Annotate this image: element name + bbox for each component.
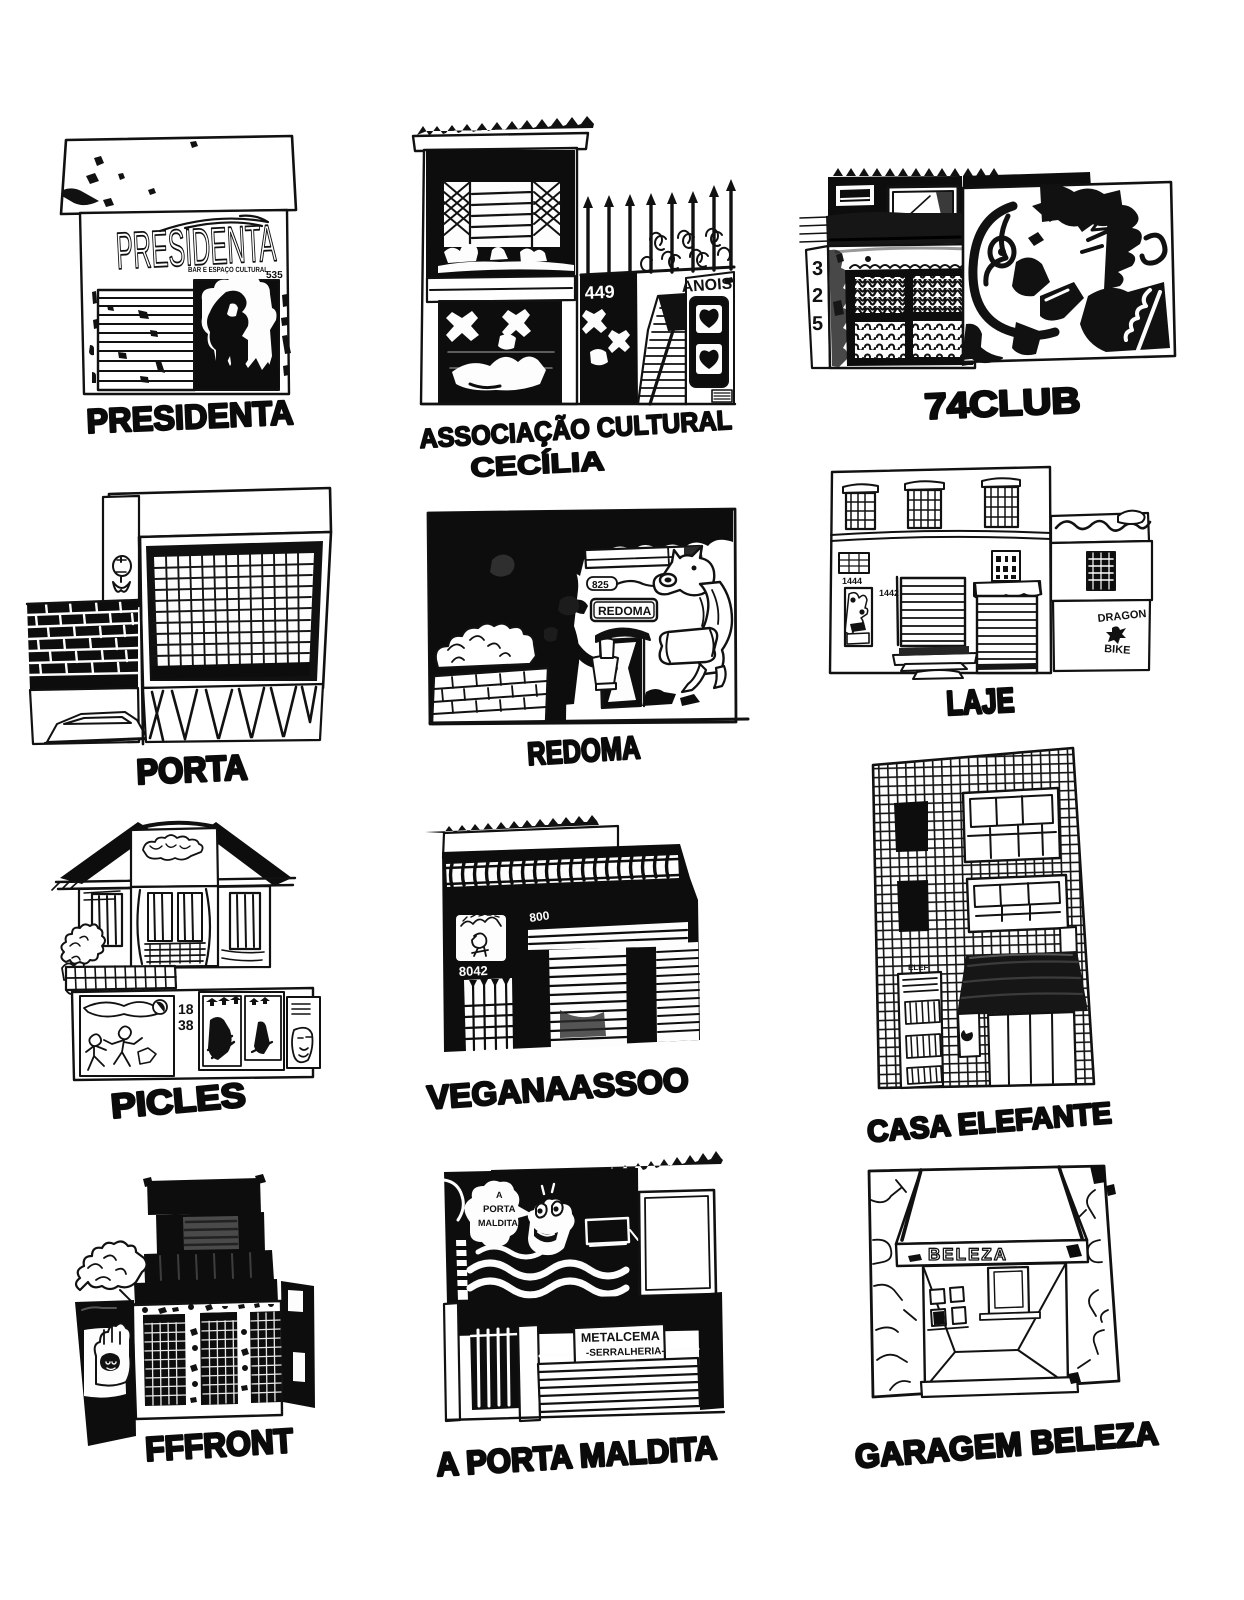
- svg-text:VEGANAASSOO: VEGANAASSOO: [426, 1061, 690, 1116]
- svg-text:PRESIDENTA: PRESIDENTA: [86, 394, 294, 441]
- svg-text:5: 5: [812, 313, 823, 335]
- svg-text:PICLES: PICLES: [109, 1076, 247, 1126]
- svg-text:PORTA: PORTA: [136, 748, 249, 792]
- svg-text:CASA ELEFANTE: CASA ELEFANTE: [866, 1097, 1113, 1149]
- svg-text:-SERRALHERIA-: -SERRALHERIA-: [586, 1346, 665, 1359]
- svg-text:2: 2: [812, 285, 823, 307]
- svg-text:38: 38: [178, 1017, 194, 1033]
- svg-text:1444: 1444: [842, 576, 862, 586]
- svg-text:LAJE: LAJE: [945, 681, 1015, 723]
- svg-text:ASSOCIAÇÃO CULTURAL: ASSOCIAÇÃO CULTURAL: [418, 404, 732, 454]
- svg-text:A: A: [496, 1190, 503, 1200]
- svg-text:BAR E ESPAÇO CULTURAL: BAR E ESPAÇO CULTURAL: [188, 265, 268, 274]
- svg-text:74CLUB: 74CLUB: [924, 379, 1082, 427]
- svg-text:449: 449: [584, 281, 615, 303]
- svg-text:A PORTA MALDITA: A PORTA MALDITA: [435, 1429, 718, 1483]
- svg-text:GARAGEM BELEZA: GARAGEM BELEZA: [854, 1414, 1160, 1475]
- svg-text:METALCEMA: METALCEMA: [581, 1329, 660, 1345]
- svg-text:FFFRONT: FFFRONT: [144, 1422, 294, 1469]
- svg-text:825: 825: [592, 580, 609, 591]
- svg-text:8042: 8042: [459, 963, 488, 979]
- svg-text:REDOMA: REDOMA: [598, 604, 652, 618]
- svg-text:ANOIS: ANOIS: [681, 275, 733, 296]
- svg-text:3: 3: [812, 258, 823, 280]
- svg-text:MALDITA: MALDITA: [478, 1218, 518, 1228]
- svg-text:REDOMA: REDOMA: [526, 729, 641, 772]
- svg-text:BIKE: BIKE: [1104, 643, 1131, 657]
- svg-text:18: 18: [178, 1001, 194, 1017]
- svg-text:ELEF: ELEF: [908, 963, 929, 972]
- svg-text:CECÍLIA: CECÍLIA: [470, 446, 605, 483]
- svg-text:800: 800: [528, 908, 550, 925]
- svg-text:PORTA: PORTA: [483, 1204, 516, 1215]
- svg-text:BELEZA: BELEZA: [928, 1245, 1008, 1264]
